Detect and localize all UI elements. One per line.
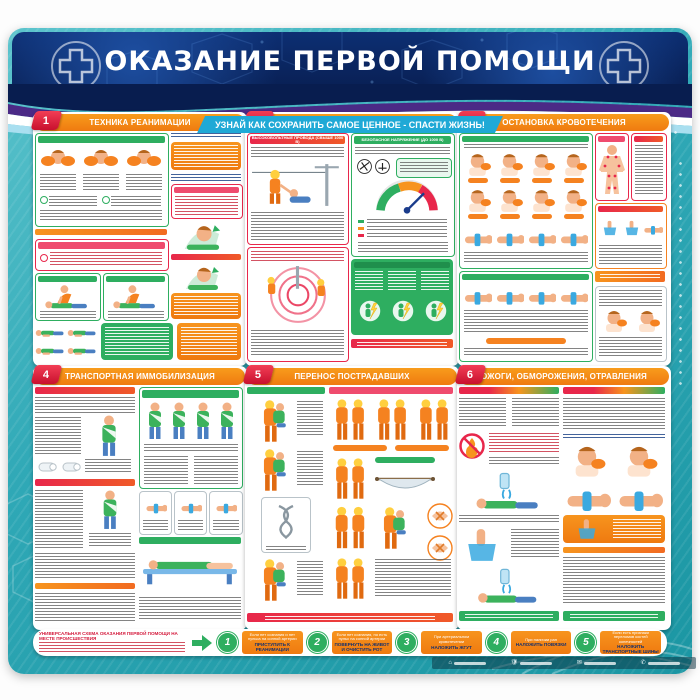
no-open-flame-icon: [459, 433, 485, 459]
panel-4-body: [35, 387, 245, 624]
microtext: [297, 561, 323, 595]
step-action: НАЛОЖИТЬ ТРАНСПОРТНЫЕ ШИНЫ: [602, 644, 659, 654]
section-bar: [459, 387, 559, 394]
drink-water-illustration: [459, 567, 559, 605]
panel-6-number: 6: [467, 369, 473, 381]
tourniquet-illustration: [463, 224, 492, 249]
microtext: [178, 520, 203, 530]
label-pill: [468, 178, 488, 183]
rescue-illustration: [82, 145, 120, 171]
bandage-roll-icon: [37, 459, 57, 475]
panel-4-title: ТРАНСПОРТНАЯ ИММОБИЛИЗАЦИЯ: [65, 372, 215, 381]
sling-variant-illustration: [216, 401, 238, 441]
splint-detail-box: [174, 491, 207, 535]
arrow-right-icon: [191, 634, 213, 652]
microtext: [421, 271, 449, 291]
panel-electrical: 2 ЭЛЕКТРОТРАВМЫ ВЫСОКОВОЛЬТНЫЕ ПРОВОДА (…: [245, 112, 459, 366]
tourniquet-step-illustration: [463, 284, 492, 306]
pressure-point-illustration: [527, 188, 556, 213]
section-bar: [35, 479, 135, 486]
microtext: [181, 327, 237, 356]
microtext: [35, 490, 83, 548]
microtext: [297, 451, 323, 485]
label-pill: [468, 214, 488, 219]
microtext: [213, 520, 239, 530]
step-number: 1: [225, 637, 231, 648]
alert-ring-icon: [40, 254, 48, 262]
microtext: [35, 397, 135, 413]
step-condition: Если нет сознания и нет пульса на сонной…: [244, 633, 301, 642]
scheme-step-number: 5: [575, 632, 596, 653]
microtext: [599, 245, 662, 264]
hand-wrap-illustration: [615, 481, 663, 511]
warning-strip: [247, 613, 453, 622]
section-bar: [247, 387, 325, 394]
microtext: [489, 457, 559, 465]
panel-5-number: 5: [255, 369, 261, 381]
legend-chip-orange: [358, 227, 364, 230]
limb-box: [595, 203, 667, 269]
step-condition: При артериальном кровотечении: [423, 635, 480, 644]
microtext: [89, 533, 131, 547]
medical-cross-icon: [50, 40, 102, 92]
microtext: [171, 133, 241, 139]
leg-splint-bed-illustration: [141, 548, 239, 592]
section-bar: [354, 262, 450, 268]
contact-text-placeholder: [584, 662, 616, 665]
microtext: [108, 311, 164, 318]
warning-box: [171, 184, 243, 219]
carry-illustration: [373, 505, 411, 551]
microtext: [171, 174, 241, 181]
tourniquet-step-illustration: [495, 284, 524, 306]
scheme-step-box: При артериальном кровотечении НАЛОЖИТЬ Ж…: [421, 631, 482, 654]
label-pill: [532, 214, 552, 219]
step-action: ПРИСТУПИТЬ К РЕАНИМАЦИИ: [244, 642, 301, 652]
cpr-box: [35, 273, 101, 321]
microtext: [144, 444, 238, 452]
recovery-position-illustration: [67, 343, 97, 359]
carry-illustration: [251, 557, 293, 603]
step-action: НАЛОЖИТЬ ЖГУТ: [431, 645, 472, 650]
contact-text-placeholder: [520, 662, 552, 665]
label-pill: [500, 214, 520, 219]
panel-6-title: ОЖОГИ, ОБМОРОЖЕНИЯ, ОТРАВЛЕНИЯ: [481, 372, 647, 381]
header-band: ОКАЗАНИЕ ПЕРВОЙ ПОМОЩИ: [12, 32, 688, 98]
scheme-step-number: 2: [307, 632, 328, 653]
recovery-position-illustration: [35, 325, 65, 341]
microtext: [489, 433, 559, 453]
voltage-gauge-illustration: [374, 180, 440, 216]
step-condition: Если нет сознания, но есть пульс на сонн…: [334, 633, 391, 642]
panel-2-body: ВЫСОКОВОЛЬТНЫЕ ПРОВОДА (СВЫШЕ 1000 В) БЕ…: [247, 133, 457, 360]
section-bar: [462, 274, 589, 280]
scheme-step-number: 1: [217, 632, 238, 653]
label-pill-green: [375, 457, 435, 463]
microtext: [357, 342, 447, 346]
frostbite-leg-illustration: [567, 518, 607, 540]
bodymap-box: [595, 133, 629, 201]
scheme-step-number: 4: [486, 632, 507, 653]
body-pressure-map: [598, 144, 626, 196]
instruction-box-orange: [177, 323, 241, 360]
microtext: [266, 546, 306, 552]
panel-4-number-badge: 4: [31, 365, 63, 384]
label-pill: [564, 214, 584, 219]
leg-wound-illustration: [600, 215, 620, 241]
legend-chip-red: [358, 234, 364, 237]
panel-4-header: 4 ТРАНСПОРТНАЯ ИММОБИЛИЗАЦИЯ: [35, 368, 245, 385]
panel-bleeding: 3 ОСТАНОВКА КРОВОТЕЧЕНИЯ: [457, 112, 671, 366]
sling-types-box: [139, 387, 243, 489]
panel-resuscitation: 1 ТЕХНИКА РЕАНИМАЦИИ: [33, 112, 247, 366]
splint-detail-box: [209, 491, 243, 535]
masked-aider-illustration: [633, 309, 661, 333]
section-bar: [38, 276, 97, 282]
two-person-carry-illustration: [373, 398, 411, 442]
section-bar: [563, 547, 665, 553]
panel-3-body: [459, 133, 669, 360]
microtext: [600, 274, 660, 280]
microtext: [570, 614, 658, 619]
panel-3-title: ОСТАНОВКА КРОВОТЕЧЕНИЯ: [502, 118, 626, 127]
bandage-roll-icon: [61, 459, 81, 475]
section-bar: [595, 271, 665, 282]
contact-text-placeholder: [648, 662, 680, 665]
panel-1-number-badge: 1: [31, 111, 63, 130]
safevoltage-box: БЕЗОПАСНОЕ НАПРЯЖЕНИЕ (ДО 1000 В): [351, 133, 455, 257]
microtext: [39, 642, 185, 654]
section-bar: [462, 136, 589, 142]
microtext: [251, 212, 344, 240]
two-person-carry-illustration: [331, 398, 369, 442]
instruction-box-orange: [171, 293, 241, 319]
shield-icon: 🛡: [511, 660, 519, 666]
microtext: [465, 614, 553, 619]
microtext: [194, 456, 238, 484]
arm-sling-illustration: [87, 415, 131, 457]
microtext: [49, 196, 97, 206]
microtext: [464, 252, 588, 264]
panel-burns: 6 ОЖОГИ, ОБМОРОЖЕНИЯ, ОТРАВЛЕНИЯ: [457, 366, 671, 630]
microtext: [83, 174, 119, 192]
splint-illustration: [180, 496, 202, 516]
head-tilt-illustration: [175, 221, 231, 251]
label-pill: [333, 445, 387, 451]
microtext: [599, 337, 662, 357]
panel-6-number-badge: 6: [455, 365, 487, 384]
microtext: [563, 557, 665, 605]
microtext: [251, 147, 344, 159]
step-ring-icon: [102, 196, 110, 204]
microtext: [464, 348, 588, 356]
green-section: [351, 259, 453, 335]
picto-circle-icon: [357, 159, 372, 174]
section-bar: [563, 387, 665, 394]
splint-illustration: [215, 496, 237, 516]
scheme-title: УНИВЕРСАЛЬНАЯ СХЕМА ОКАЗАНИЯ ПЕРВОЙ ПОМО…: [39, 631, 187, 641]
microtext: [111, 196, 161, 206]
note-box: [396, 158, 452, 178]
safevoltage-bar: БЕЗОПАСНОЕ НАПРЯЖЕНИЕ (ДО 1000 В): [354, 136, 451, 144]
cool-burn-illustration: [459, 471, 559, 511]
cpr-illustration: [110, 284, 160, 310]
section-bar: [598, 206, 663, 212]
label-pill: [532, 178, 552, 183]
scheme-step-box: Если нет сознания и нет пульса на сонной…: [242, 631, 303, 654]
banner-ribbon: УЗНАЙ КАК СОХРАНИТЬ САМОЕ ЦЕННОЕ - СПАСТ…: [197, 116, 503, 133]
section-bar: [171, 254, 241, 260]
label-pill: [395, 445, 449, 451]
sling-variant-illustration: [168, 401, 190, 441]
microtext: [144, 456, 188, 484]
microtext: [35, 593, 135, 621]
microtext: [355, 271, 383, 291]
carry-pair-illustration: [331, 557, 369, 601]
section-bar: [106, 276, 165, 282]
pressure-point-illustration: [495, 188, 524, 213]
cpr-box: [103, 273, 169, 321]
panel-4-number: 4: [43, 369, 49, 381]
step-number: 5: [583, 637, 589, 648]
section-bar: [634, 136, 663, 142]
carry-pair-illustration: [331, 457, 369, 501]
highvoltage-box: ВЫСОКОВОЛЬТНЫЕ ПРОВОДА (СВЫШЕ 1000 В): [247, 133, 349, 245]
label-pill: [564, 178, 584, 183]
microtext: [367, 233, 447, 237]
contact-text-placeholder: [454, 662, 486, 665]
microtext: [265, 616, 435, 620]
pressure-point-illustration: [559, 188, 588, 213]
pressure-point-illustration: [559, 152, 588, 177]
electric-hazard-icon: [424, 299, 448, 323]
step-action: НАЛОЖИТЬ ПОВЯЗКИ: [516, 642, 567, 647]
cpr-illustration: [42, 284, 92, 310]
tourniquet-illustration: [559, 224, 588, 249]
section-bar: [142, 390, 239, 398]
arm-wound-illustration: [643, 215, 663, 241]
step-condition: Если есть признаки переломов костей коне…: [602, 631, 659, 644]
electric-hazard-icon: [391, 299, 415, 323]
shoulder-bandage-illustration: [89, 490, 131, 530]
step-action: ПОВЕРНУТЬ НА ЖИВОТ И ОЧИСТИТЬ РОТ: [334, 642, 391, 652]
picto-circle-icon: [375, 159, 390, 174]
step-number: 3: [404, 637, 410, 648]
scheme-step-box: Если есть признаки переломов костей коне…: [600, 631, 661, 654]
microtext: [511, 529, 559, 559]
microtext: [464, 310, 588, 332]
splint-detail-box: [139, 491, 172, 535]
microtext: [464, 144, 588, 150]
stretcher-illustration: [375, 467, 435, 499]
step-number: 2: [314, 637, 320, 648]
panel-6-header: 6 ОЖОГИ, ОБМОРОЖЕНИЯ, ОТРАВЛЕНИЯ: [459, 368, 669, 385]
section-bar: [459, 611, 559, 621]
scheme-text-block: УНИВЕРСАЛЬНАЯ СХЕМА ОКАЗАНИЯ ПЕРВОЙ ПОМО…: [39, 631, 187, 654]
step-number: 4: [494, 637, 500, 648]
two-person-carry-illustration: [415, 398, 453, 442]
microtext: [126, 174, 162, 192]
pressure-points-box: [459, 133, 593, 269]
microtext: [174, 296, 238, 316]
section-bar: [351, 339, 453, 348]
cool-limb-illustration: [459, 527, 505, 563]
microtext: [175, 196, 238, 215]
microtext: [563, 398, 665, 430]
aid-box: [595, 286, 667, 362]
instruction-box-orange: [563, 515, 665, 543]
microtext: [40, 174, 76, 192]
tourniquet-box: [459, 271, 593, 362]
highvoltage-bar: ВЫСОКОВОЛЬТНЫЕ ПРОВОДА (СВЫШЕ 1000 В): [250, 136, 345, 144]
recovery-position-illustration: [35, 343, 65, 359]
microtext: [512, 398, 559, 428]
strap-diagram-box: [261, 497, 311, 553]
pressure-point-illustration: [527, 152, 556, 177]
carry-illustration: [251, 447, 293, 493]
rescue-illustration: [39, 145, 77, 171]
section-bar: [38, 136, 165, 143]
microtext: [375, 559, 451, 597]
strap-knot-detail: [427, 535, 453, 561]
home-icon: ⌂: [448, 660, 452, 666]
section-bar: [35, 387, 135, 394]
panel-carrying: 5 ПЕРЕНОС ПОСТРАДАВШИХ: [245, 366, 459, 630]
label-pill: [500, 178, 520, 183]
panel-5-body: [247, 387, 457, 624]
head-bandage-illustration: [615, 444, 663, 478]
microtext: [174, 145, 238, 167]
medical-cross-icon: [598, 40, 650, 92]
rescue-illustration: [125, 145, 163, 171]
scheme-step-box: Если нет сознания, но есть пульс на сонн…: [332, 631, 393, 654]
panel-5-number-badge: 5: [243, 365, 275, 384]
phone-icon: ✆: [641, 660, 646, 666]
step-ring-icon: [40, 196, 48, 204]
legend-chip-green: [358, 220, 364, 223]
microtext: [563, 434, 665, 440]
section-bar: [35, 229, 167, 235]
sling-variant-illustration: [192, 401, 214, 441]
tourniquet-step-illustration: [527, 284, 556, 306]
instruction-box-green: [101, 323, 173, 360]
section-bar: [139, 537, 241, 544]
universal-scheme-strip: УНИВЕРСАЛЬНАЯ СХЕМА ОКАЗАНИЯ ПЕРВОЙ ПОМО…: [33, 629, 667, 656]
panel-5-title: ПЕРЕНОС ПОСТРАДАВШИХ: [294, 372, 409, 381]
microtext: [459, 398, 506, 428]
strap-knot-detail: [427, 503, 453, 529]
leg-wound-illustration: [622, 215, 642, 241]
microtext: [50, 252, 162, 266]
microtext: [35, 417, 81, 455]
contact-item: ⌂: [448, 660, 486, 666]
warning-bar: [174, 187, 239, 193]
microtext: [367, 219, 447, 223]
microtext: [459, 515, 559, 523]
microtext: [635, 145, 663, 196]
hand-wrap-illustration: [563, 481, 611, 511]
mail-icon: ✉: [577, 660, 582, 666]
wire-rescue-illustration: [252, 162, 342, 208]
page: { "header": { "title": "ОКАЗАНИЕ ПЕРВОЙ …: [0, 0, 700, 700]
contacts-bar: ⌂ 🛡 ✉ ✆: [432, 657, 696, 669]
microtext: [40, 311, 96, 318]
microtext: [139, 597, 241, 621]
tourniquet-illustration: [527, 224, 556, 249]
microtext: [143, 520, 168, 530]
section-box: [35, 133, 169, 227]
electric-hazard-icon: [358, 299, 382, 323]
pressure-point-illustration: [463, 188, 492, 213]
panel-1-number: 1: [43, 115, 49, 127]
microtext: [613, 519, 661, 539]
pressure-point-illustration: [463, 152, 492, 177]
microtext: [355, 147, 450, 156]
section-bar: [329, 387, 453, 394]
microtext: [251, 330, 344, 357]
tourniquet-illustration: [495, 224, 524, 249]
banner-text: УЗНАЙ КАК СОХРАНИТЬ САМОЕ ЦЕННОЕ - СПАСТ…: [215, 120, 485, 130]
microtext: [85, 459, 131, 473]
head-tilt-illustration: [175, 263, 231, 291]
contact-item: ✉: [577, 660, 616, 666]
microtext: [105, 327, 169, 356]
warming-illustration: [563, 444, 611, 478]
pressure-point-illustration: [495, 152, 524, 177]
panel-6-body: [459, 387, 669, 624]
section-bar: [598, 136, 625, 142]
microtext: [35, 553, 135, 579]
microtext: [599, 290, 662, 306]
microtext: [367, 226, 447, 230]
tourniquet-step-illustration: [559, 284, 588, 306]
stepvoltage-box: [247, 247, 349, 362]
panel-1-title: ТЕХНИКА РЕАНИМАЦИИ: [89, 118, 190, 127]
section-bar: [563, 611, 665, 621]
scheme-step-number: 3: [396, 632, 417, 653]
recovery-position-illustration: [67, 325, 97, 341]
masked-aider-illustration: [600, 309, 628, 333]
poster-title: ОКАЗАНИЕ ПЕРВОЙ ПОМОЩИ: [12, 46, 688, 77]
scheme-step-box: При наличии ран НАЛОЖИТЬ ПОВЯЗКИ: [511, 631, 572, 654]
warning-box: [35, 239, 169, 271]
rules-box: [631, 133, 667, 201]
carry-illustration: [251, 398, 293, 444]
microtext: [358, 242, 448, 252]
splint-illustration: [145, 496, 167, 516]
section-bar: [35, 583, 135, 589]
microtext: [400, 162, 448, 174]
panel-1-body: [35, 133, 245, 360]
panel-5-header: 5 ПЕРЕНОС ПОСТРАДАВШИХ: [247, 368, 457, 385]
microtext: [388, 271, 416, 291]
microtext: [297, 401, 323, 435]
contact-item: 🛡: [511, 660, 553, 666]
microtext: [251, 251, 344, 261]
step-voltage-illustration: [256, 264, 340, 326]
warning-bar: [38, 242, 165, 249]
carry-pair-illustration: [331, 505, 369, 551]
strap-loop-illustration: [269, 502, 303, 542]
sling-variant-illustration: [144, 401, 166, 441]
panel-immobilization: 4 ТРАНСПОРТНАЯ ИММОБИЛИЗАЦИЯ: [33, 366, 247, 630]
contact-item: ✆: [641, 660, 680, 666]
microtext: [40, 210, 162, 222]
label-pill: [486, 338, 566, 344]
instruction-box-orange: [171, 142, 241, 170]
